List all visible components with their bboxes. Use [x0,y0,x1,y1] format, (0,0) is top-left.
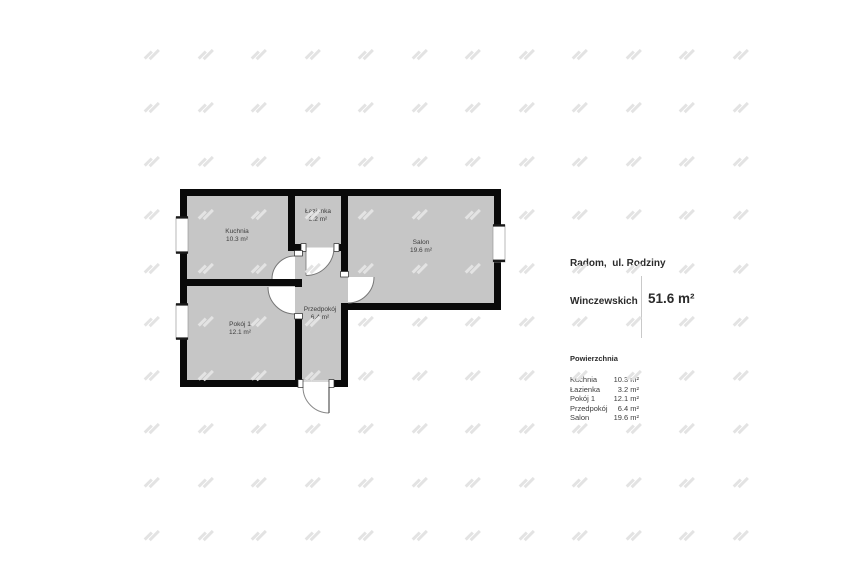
info-panel: Radom, ul. Rodziny Winczewskich Powierzc… [570,232,800,422]
wall-przedpokoj-left-lower [295,314,302,380]
room-label-przedpokoj: Przedpokój 6.4 m² [304,306,337,322]
area-row-label: Kuchnia [570,375,597,384]
floor-area [187,196,494,380]
total-area: 51.6 m² [648,291,695,306]
window-pokoj1 [176,303,188,340]
area-table-header: Powierzchnia [570,354,800,363]
room-area: 3.2 m² [309,216,327,223]
area-row-pokoj1: Pokój 1 12.1 m² [570,394,639,403]
area-row-przedpokoj: Przedpokój 6.4 m² [570,404,639,413]
room-name: Łazienka [305,208,331,215]
area-row-label: Pokój 1 [570,394,595,403]
floorplan-page: Kuchnia 10.3 m² Łazienka 3.2 m² Salon 19… [0,0,863,575]
area-row-salon: Salon 19.6 m² [570,413,639,422]
area-row-value: 6.4 m² [618,404,639,413]
room-area: 12.1 m² [229,329,251,336]
wall-przedpokoj-left-mid [295,279,302,287]
window-kuchnia [176,216,188,254]
area-row-lazienka: Łazienka 3.2 m² [570,385,639,394]
room-area: 19.6 m² [410,247,432,254]
window-salon [493,224,505,262]
area-row-label: Łazienka [570,385,600,394]
table-divider-line [641,276,642,338]
area-row-label: Przedpokój [570,404,608,413]
wall-kuchnia-lazienka [288,196,295,251]
area-table: Kuchnia 10.3 m² Łazienka 3.2 m² Pokój 1 … [570,375,639,422]
entrance-opening [303,380,329,387]
room-area: 10.3 m² [226,236,248,243]
area-row-value: 12.1 m² [614,394,639,403]
room-area: 6.4 m² [311,314,329,321]
outer-walls [180,189,501,387]
room-label-kuchnia: Kuchnia 10.3 m² [225,228,249,244]
area-row-value: 3.2 m² [618,385,639,394]
door-entrance [303,387,329,413]
area-row-kuchnia: Kuchnia 10.3 m² [570,375,639,384]
room-label-salon: Salon 19.6 m² [410,239,432,255]
room-name: Salon [413,239,430,246]
address-title: Radom, ul. Rodziny Winczewskich [570,232,800,334]
wall-salon-left [341,196,348,277]
room-name: Kuchnia [225,228,249,235]
address-line1: Radom, ul. Rodziny [570,258,800,271]
area-row-value: 19.6 m² [614,413,639,422]
area-row-label: Salon [570,413,589,422]
wall-kuchnia-pokoj-divider [187,279,295,286]
room-label-lazienka: Łazienka 3.2 m² [305,208,331,224]
area-row-value: 10.3 m² [614,375,639,384]
room-name: Przedpokój [304,306,337,313]
room-name: Pokój 1 [229,321,251,328]
room-label-pokoj1: Pokój 1 12.1 m² [229,321,251,337]
